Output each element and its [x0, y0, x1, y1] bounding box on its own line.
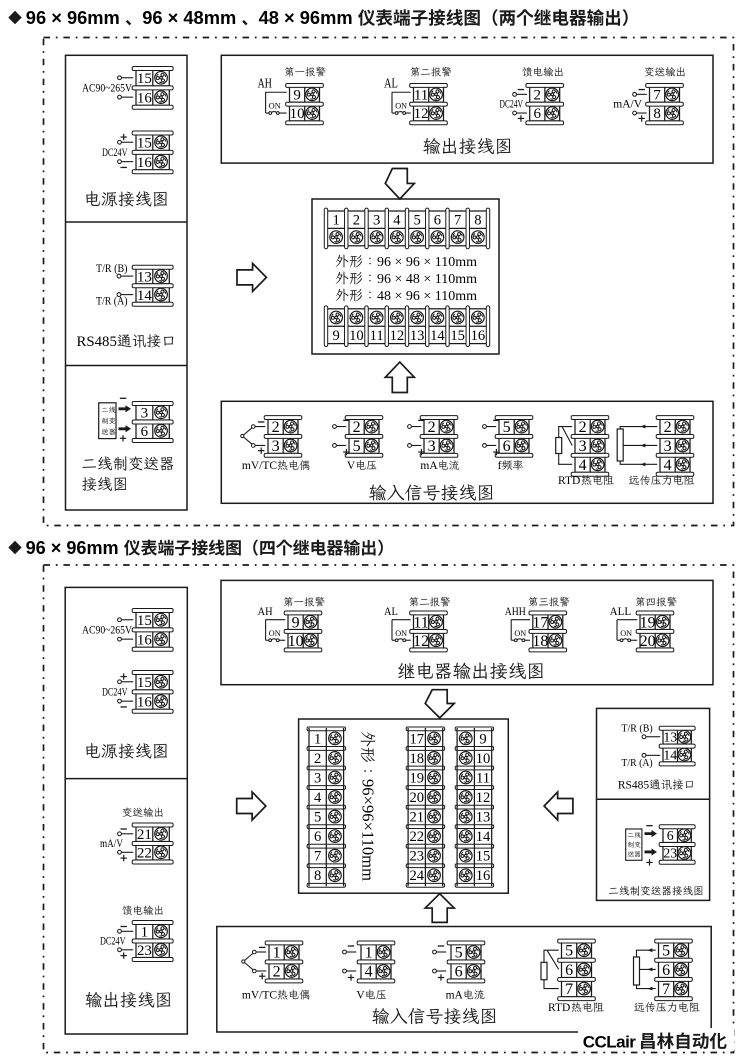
svg-text:22: 22 [409, 829, 424, 845]
svg-text:16: 16 [137, 155, 153, 171]
svg-text:3: 3 [373, 213, 380, 229]
svg-text:2: 2 [579, 419, 587, 436]
svg-text:1: 1 [141, 924, 149, 940]
svg-text:6: 6 [503, 438, 511, 455]
svg-text:15: 15 [137, 613, 152, 629]
svg-text:15: 15 [137, 675, 152, 691]
svg-text:13: 13 [663, 730, 677, 745]
svg-text:11: 11 [414, 88, 428, 104]
svg-text:3: 3 [314, 770, 321, 786]
svg-text:AL: AL [384, 76, 398, 91]
svg-text:1: 1 [332, 213, 339, 229]
svg-text:15: 15 [137, 135, 152, 151]
svg-text:96 × 96 × 110mm: 96 × 96 × 110mm [377, 255, 477, 270]
svg-text:CCLair: CCLair [583, 1033, 637, 1052]
svg-text:6: 6 [434, 213, 441, 229]
svg-text:mA/V: mA/V [613, 99, 642, 111]
svg-text:12: 12 [476, 790, 491, 806]
svg-text:3: 3 [579, 438, 587, 455]
svg-text:RS485: RS485 [618, 780, 650, 792]
svg-text:4: 4 [393, 213, 401, 229]
svg-text:15: 15 [450, 328, 465, 344]
svg-text:6: 6 [534, 106, 542, 122]
svg-text:13: 13 [137, 269, 152, 285]
svg-text:AHH: AHH [505, 604, 526, 618]
svg-text:23: 23 [137, 943, 152, 959]
svg-text:AL: AL [384, 604, 398, 618]
svg-text:DC24V: DC24V [100, 935, 126, 947]
svg-text:19: 19 [640, 614, 656, 631]
svg-text:8: 8 [314, 868, 321, 884]
svg-text:5: 5 [565, 943, 573, 960]
svg-text:T/R (B): T/R (B) [621, 723, 653, 735]
svg-text:DC24V: DC24V [102, 147, 128, 159]
svg-text:AH: AH [258, 76, 272, 91]
svg-text:2: 2 [353, 213, 360, 229]
svg-text:AH: AH [258, 604, 273, 618]
svg-text:18: 18 [409, 751, 424, 767]
svg-text:16: 16 [476, 868, 491, 884]
svg-text:14: 14 [137, 288, 153, 304]
svg-text:AC90~265V: AC90~265V [82, 624, 133, 636]
svg-text:AC90~265V: AC90~265V [82, 82, 133, 94]
svg-text:10: 10 [349, 328, 364, 344]
svg-text:22: 22 [137, 845, 152, 861]
svg-text:ON: ON [269, 102, 281, 111]
svg-text:11: 11 [476, 770, 490, 786]
svg-text:4: 4 [365, 964, 373, 981]
svg-text:7: 7 [653, 88, 661, 104]
svg-text:96 × 48 × 110mm: 96 × 48 × 110mm [377, 272, 477, 287]
svg-text:6: 6 [662, 962, 670, 979]
svg-text:5: 5 [455, 945, 463, 962]
svg-text:96 × 96mm: 96 × 96mm [26, 538, 119, 558]
svg-text:12: 12 [413, 633, 429, 650]
svg-text:V: V [356, 990, 365, 1002]
svg-text:5: 5 [353, 438, 361, 455]
svg-text:DC24V: DC24V [500, 99, 524, 111]
svg-text:mA: mA [446, 990, 464, 1002]
svg-text:3: 3 [664, 438, 672, 455]
svg-text:5: 5 [413, 213, 420, 229]
svg-text:48 × 96mm: 48 × 96mm [259, 7, 353, 28]
svg-text:6: 6 [141, 424, 149, 440]
svg-text:20: 20 [640, 633, 656, 650]
svg-text:3: 3 [428, 438, 436, 455]
svg-text:19: 19 [409, 770, 424, 786]
svg-text:96 × 96mm: 96 × 96mm [26, 7, 120, 28]
svg-text:2: 2 [534, 88, 542, 104]
svg-text:f: f [498, 460, 502, 472]
svg-text:12: 12 [390, 328, 405, 344]
svg-text:mA/V: mA/V [100, 838, 124, 850]
svg-text:ALL: ALL [610, 604, 632, 618]
svg-text:2: 2 [353, 419, 361, 436]
svg-text:16: 16 [137, 90, 153, 106]
svg-text:6: 6 [565, 962, 573, 979]
svg-text:16: 16 [137, 694, 153, 710]
svg-text:13: 13 [476, 810, 491, 826]
svg-text:ON: ON [269, 629, 281, 638]
svg-text:T/R (A): T/R (A) [621, 757, 653, 769]
svg-text:T/R (A): T/R (A) [96, 296, 128, 308]
svg-text:10: 10 [288, 633, 304, 650]
svg-text:2: 2 [273, 964, 281, 981]
svg-text:5: 5 [503, 419, 511, 436]
svg-text:8: 8 [653, 106, 661, 122]
svg-text:7: 7 [662, 981, 670, 998]
svg-text:ON: ON [514, 629, 526, 638]
svg-text:14: 14 [430, 328, 445, 344]
svg-text:5: 5 [662, 943, 670, 960]
svg-text:23: 23 [409, 849, 424, 865]
svg-text:2: 2 [428, 419, 436, 436]
svg-text:4: 4 [579, 457, 587, 474]
svg-text:48 × 96 × 110mm: 48 × 96 × 110mm [377, 289, 477, 304]
svg-text:ON: ON [395, 102, 407, 111]
svg-text:6: 6 [455, 964, 463, 981]
svg-text:RS485: RS485 [77, 334, 117, 350]
svg-text:V: V [347, 460, 356, 472]
svg-text:10: 10 [290, 106, 305, 122]
svg-text:11: 11 [370, 328, 384, 344]
svg-text:1: 1 [314, 731, 321, 747]
svg-text:RTD: RTD [548, 1002, 570, 1014]
svg-text:12: 12 [414, 106, 429, 122]
svg-text:RTD: RTD [558, 475, 580, 487]
svg-text:23: 23 [663, 846, 677, 861]
svg-text:96 × 48mm: 96 × 48mm [142, 7, 236, 28]
svg-text:11: 11 [413, 614, 428, 631]
svg-text:16: 16 [137, 632, 153, 648]
svg-text:7: 7 [565, 981, 573, 998]
svg-text:9: 9 [479, 731, 486, 747]
svg-text:14: 14 [663, 747, 677, 762]
svg-text:9: 9 [292, 614, 300, 631]
svg-text:21: 21 [409, 810, 424, 826]
svg-text:mV/TC: mV/TC [242, 460, 277, 472]
svg-text:14: 14 [476, 829, 491, 845]
svg-text:3: 3 [141, 405, 149, 421]
svg-text:96×96×110mm: 96×96×110mm [358, 779, 377, 881]
svg-text:5: 5 [314, 810, 321, 826]
svg-text:24: 24 [409, 868, 424, 884]
svg-text:13: 13 [410, 328, 425, 344]
svg-text:20: 20 [409, 790, 424, 806]
svg-text:ON: ON [620, 629, 632, 638]
svg-text:mA: mA [420, 460, 438, 472]
svg-text:4: 4 [314, 790, 322, 806]
svg-text:4: 4 [664, 457, 672, 474]
svg-text:9: 9 [332, 328, 339, 344]
svg-text:7: 7 [454, 213, 461, 229]
svg-text:6: 6 [314, 829, 321, 845]
svg-text:16: 16 [471, 328, 486, 344]
svg-text:mV/TC: mV/TC [242, 990, 277, 1002]
svg-text:7: 7 [314, 849, 321, 865]
svg-text:15: 15 [476, 849, 491, 865]
svg-text:ON: ON [395, 629, 407, 638]
svg-text:2: 2 [272, 419, 280, 436]
svg-text:2: 2 [314, 751, 321, 767]
svg-text:15: 15 [137, 71, 152, 87]
svg-text:21: 21 [137, 827, 152, 843]
svg-text:18: 18 [532, 633, 548, 650]
svg-text:3: 3 [272, 438, 280, 455]
svg-text:2: 2 [664, 419, 672, 436]
svg-text:17: 17 [409, 731, 424, 747]
svg-text:DC24V: DC24V [102, 686, 128, 698]
svg-text:1: 1 [273, 945, 281, 962]
svg-text:1: 1 [365, 945, 373, 962]
svg-text:6: 6 [667, 828, 674, 843]
svg-text:8: 8 [474, 213, 481, 229]
svg-text:17: 17 [532, 614, 548, 631]
svg-text:T/R (B): T/R (B) [96, 263, 128, 275]
svg-text:9: 9 [293, 88, 301, 104]
svg-text:10: 10 [476, 751, 491, 767]
